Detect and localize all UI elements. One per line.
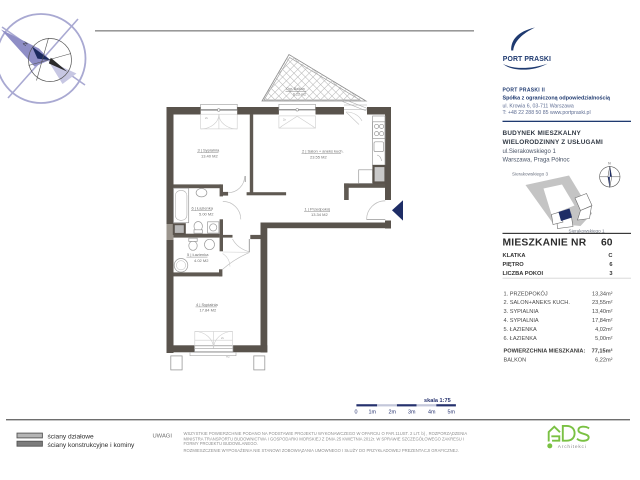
svg-text:A2: A2 — [226, 355, 230, 359]
svg-text:POWIERZCHNIA MIESZKANIA:: POWIERZCHNIA MIESZKANIA: — [504, 348, 586, 354]
svg-text:BALKON: BALKON — [504, 358, 527, 364]
svg-text:3m: 3m — [408, 410, 416, 416]
svg-text:Warszawa, Praga Północ: Warszawa, Praga Północ — [503, 157, 570, 163]
svg-text:4,02m²: 4,02m² — [595, 327, 613, 333]
svg-text:60: 60 — [601, 238, 613, 249]
svg-text:0: 0 — [355, 410, 358, 416]
svg-text:4 | Sypialnia: 4 | Sypialnia — [196, 302, 218, 307]
svg-text:Spółka z ograniczoną odpowiedz: Spółka z ograniczoną odpowiedzialnością — [503, 95, 612, 101]
svg-text:2. SALON+ANEKS KUCH.: 2. SALON+ANEKS KUCH. — [504, 300, 571, 306]
svg-text:6.22 m2: 6.22 m2 — [293, 93, 306, 97]
svg-text:23,55m²: 23,55m² — [592, 300, 613, 306]
svg-text:PORT PRASKI: PORT PRASKI — [503, 56, 551, 63]
svg-text:C: C — [608, 253, 612, 259]
svg-text:ściany konstrukcyjne i kominy: ściany konstrukcyjne i kominy — [48, 442, 136, 449]
svg-text:3 | Sypialnia: 3 | Sypialnia — [198, 148, 220, 153]
svg-text:4.02 M2: 4.02 M2 — [194, 258, 209, 263]
svg-text:1 | Przedpokój: 1 | Przedpokój — [305, 206, 331, 211]
svg-text:ul. Krowia 6, 03-711 Warszawa: ul. Krowia 6, 03-711 Warszawa — [503, 103, 574, 109]
svg-text:5. ŁAZIENKA: 5. ŁAZIENKA — [504, 327, 538, 333]
svg-text:17.84 M2: 17.84 M2 — [200, 308, 217, 313]
svg-text:6: 6 — [609, 262, 612, 268]
svg-text:6. ŁAZIENKA: 6. ŁAZIENKA — [504, 336, 538, 342]
svg-text:13.40 M2: 13.40 M2 — [201, 153, 218, 158]
svg-text:23.55 M2: 23.55 M2 — [310, 154, 327, 159]
svg-text:Ogr. Balkon: Ogr. Balkon — [286, 87, 305, 91]
svg-text:ściany działowe: ściany działowe — [48, 433, 95, 440]
svg-text:2m: 2m — [389, 410, 397, 416]
svg-text:3. SYPIALNIA: 3. SYPIALNIA — [504, 309, 539, 315]
svg-text:77,15m²: 77,15m² — [592, 347, 613, 354]
svg-text:PIĘTRO: PIĘTRO — [503, 262, 525, 268]
svg-text:1. PRZEDPOKÓJ: 1. PRZEDPOKÓJ — [504, 290, 548, 297]
svg-text:2x: 2x — [283, 118, 287, 122]
svg-text:17,84m²: 17,84m² — [592, 318, 613, 324]
svg-text:PORT PRASKI II: PORT PRASKI II — [503, 88, 546, 94]
svg-text:6,22m²: 6,22m² — [595, 358, 613, 364]
svg-text:2x: 2x — [221, 336, 225, 340]
svg-text:13.34 M2: 13.34 M2 — [311, 212, 328, 217]
svg-text:WSZYSTKIE POWIERZCHNIE PODANO: WSZYSTKIE POWIERZCHNIE PODANO NA PODSTAW… — [184, 431, 468, 436]
svg-text:N: N — [608, 162, 611, 166]
svg-text:Architekci: Architekci — [558, 444, 587, 450]
svg-text:ul.Sierakowskiego 1: ul.Sierakowskiego 1 — [503, 149, 557, 155]
svg-text:LICZBA POKOI: LICZBA POKOI — [503, 271, 544, 277]
svg-text:6 | Łazienka: 6 | Łazienka — [192, 206, 214, 211]
svg-text:KLATKA: KLATKA — [503, 253, 526, 259]
svg-text:skala 1:75: skala 1:75 — [424, 398, 451, 404]
svg-text:UWAGI: UWAGI — [153, 433, 173, 439]
svg-text:T: +48 22 288 50 85 www.po: T: +48 22 288 50 85 www.portpraski.pl — [503, 110, 591, 116]
svg-text:2x: 2x — [205, 116, 209, 120]
svg-text:1m: 1m — [369, 410, 377, 416]
svg-text:2 | Salon + aneks kuch.: 2 | Salon + aneks kuch. — [302, 149, 344, 154]
svg-text:5,00m²: 5,00m² — [595, 336, 613, 342]
svg-text:5.00 M2: 5.00 M2 — [199, 211, 214, 216]
svg-text:Sierakowskiego 1: Sierakowskiego 1 — [569, 228, 605, 233]
svg-text:FORMY PROJEKTU BUDOWLANEGO.: FORMY PROJEKTU BUDOWLANEGO. — [184, 441, 258, 446]
svg-text:Sierakowskiego 3: Sierakowskiego 3 — [512, 172, 548, 177]
svg-text:5 | Łazienka: 5 | Łazienka — [187, 252, 209, 257]
svg-text:WIELORODZINNY Z USŁUGAMI: WIELORODZINNY Z USŁUGAMI — [503, 139, 604, 146]
svg-text:5m: 5m — [448, 410, 456, 416]
svg-text:4m: 4m — [428, 410, 436, 416]
svg-text:13,34m²: 13,34m² — [592, 291, 613, 297]
svg-text:3: 3 — [609, 271, 612, 277]
svg-text:ROZMIESZCZENIE WYPOSAŻENIA NIE: ROZMIESZCZENIE WYPOSAŻENIA NIE STANOWI Z… — [184, 448, 459, 453]
svg-text:MIESZKANIE NR: MIESZKANIE NR — [503, 238, 587, 249]
svg-text:13,40m²: 13,40m² — [592, 309, 613, 315]
svg-text:BUDYNEK MIESZKALNY: BUDYNEK MIESZKALNY — [503, 130, 582, 137]
svg-text:4. SYPIALNIA: 4. SYPIALNIA — [504, 318, 539, 324]
